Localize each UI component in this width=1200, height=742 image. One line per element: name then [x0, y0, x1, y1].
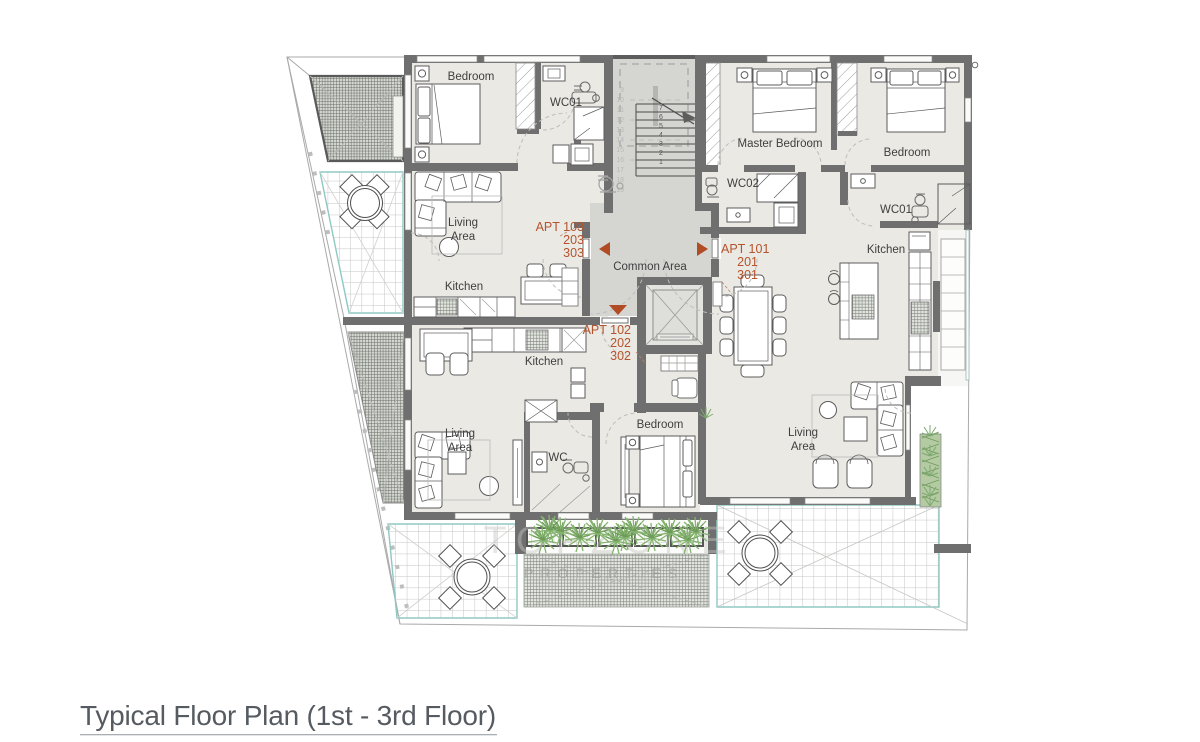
svg-text:6: 6: [659, 114, 663, 121]
svg-text:13: 13: [616, 127, 624, 134]
svg-text:203: 203: [563, 233, 584, 247]
svg-text:4: 4: [659, 132, 663, 139]
svg-text:201: 201: [737, 255, 758, 269]
svg-text:Kitchen: Kitchen: [525, 356, 563, 368]
svg-text:Area: Area: [448, 442, 473, 454]
svg-text:17: 17: [616, 167, 624, 174]
svg-text:10: 10: [616, 97, 624, 104]
svg-text:Kitchen: Kitchen: [867, 244, 905, 256]
svg-text:14: 14: [616, 137, 624, 144]
svg-text:Area: Area: [451, 231, 476, 243]
svg-text:Bedroom: Bedroom: [637, 419, 684, 431]
svg-text:301: 301: [737, 268, 758, 282]
svg-text:2: 2: [659, 150, 663, 157]
svg-text:Living: Living: [788, 427, 818, 439]
svg-text:Bedroom: Bedroom: [884, 147, 931, 159]
svg-text:9: 9: [620, 87, 624, 94]
svg-text:WC02: WC02: [727, 178, 759, 190]
svg-text:WC01: WC01: [880, 204, 912, 216]
svg-text:WC: WC: [548, 452, 567, 464]
svg-text:Living: Living: [448, 217, 478, 229]
svg-text:Living: Living: [445, 428, 475, 440]
svg-text:202: 202: [610, 336, 631, 350]
svg-text:15: 15: [616, 147, 624, 154]
svg-text:Area: Area: [791, 441, 816, 453]
svg-text:Kitchen: Kitchen: [445, 281, 483, 293]
svg-text:Common Area: Common Area: [613, 261, 687, 273]
svg-text:APT 103: APT 103: [536, 220, 584, 234]
svg-text:12: 12: [616, 117, 624, 124]
svg-text:Master Bedroom: Master Bedroom: [737, 138, 822, 150]
svg-text:Bedroom: Bedroom: [448, 71, 495, 83]
svg-text:Typical Floor Plan (1st - 3rd: Typical Floor Plan (1st - 3rd Floor): [80, 700, 496, 731]
svg-text:302: 302: [610, 349, 631, 363]
svg-text:303: 303: [563, 246, 584, 260]
svg-text:16: 16: [616, 157, 624, 164]
svg-text:PROPERTIES: PROPERTIES: [524, 565, 684, 581]
svg-text:7: 7: [659, 105, 663, 112]
svg-text:WC01: WC01: [550, 97, 582, 109]
svg-text:APT 102: APT 102: [583, 323, 631, 337]
svg-text:11: 11: [617, 107, 624, 114]
svg-text:1: 1: [659, 159, 663, 166]
svg-text:5: 5: [659, 123, 663, 130]
svg-text:3: 3: [659, 141, 663, 148]
svg-text:APT 101: APT 101: [721, 242, 769, 256]
